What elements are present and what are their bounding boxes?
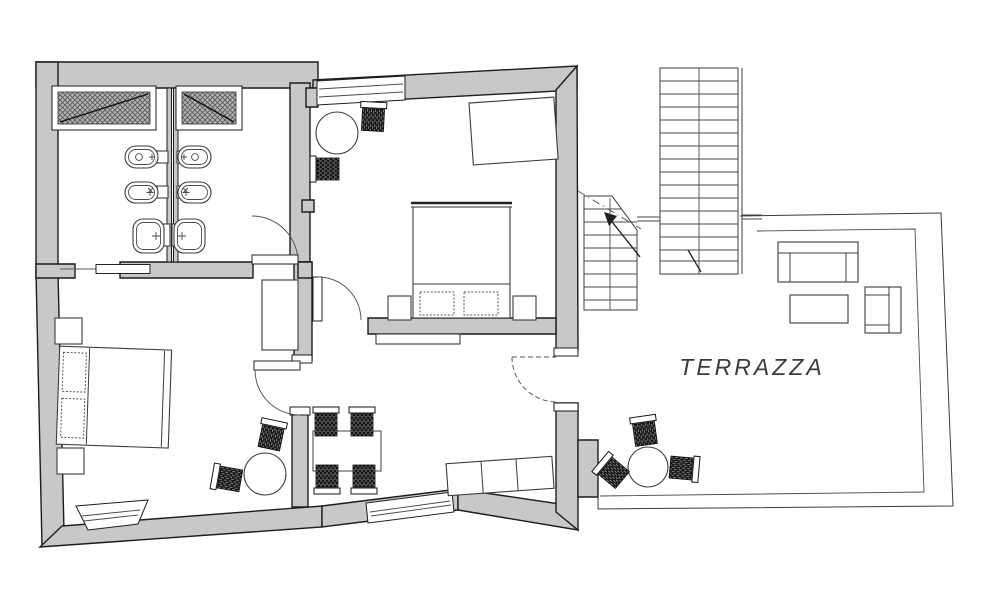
bedroom-left-furniture	[55, 318, 287, 495]
wicker-chair-icon	[349, 407, 375, 436]
stairs-up-arrow	[604, 212, 640, 257]
washbasin-icon	[172, 219, 205, 253]
door-terrace-dashed	[512, 357, 556, 402]
round-table-icon	[316, 112, 358, 154]
skylight-window-left	[52, 86, 156, 130]
large-staircase	[660, 68, 742, 274]
bidet-icon	[125, 182, 168, 203]
window-bedroom-right-top	[317, 76, 405, 105]
wicker-chair-icon	[210, 463, 243, 494]
wicker-chair-icon	[351, 465, 377, 494]
round-table-icon	[244, 453, 286, 495]
wicker-chair-icon	[310, 156, 339, 182]
skylight-window-right	[176, 86, 242, 130]
bidet-icon	[177, 182, 211, 203]
nightstand-icon	[57, 448, 84, 474]
nightstand-icon	[513, 296, 536, 320]
small-staircase	[578, 191, 641, 310]
toilet-icon	[177, 146, 211, 168]
wardrobe-icon	[262, 280, 298, 350]
radiator-icon	[376, 334, 460, 344]
wicker-chair-icon	[313, 407, 339, 436]
wicker-chair-icon	[314, 465, 340, 494]
nightstand-icon	[55, 318, 82, 344]
toilet-icon	[125, 146, 168, 168]
sofa-icon	[778, 242, 858, 282]
nightstand-icon	[388, 296, 411, 320]
wicker-chair-icon	[359, 101, 386, 131]
double-bed-icon	[411, 203, 512, 318]
bedroom-right-furniture	[310, 97, 558, 320]
door-bedroom-right	[313, 277, 361, 321]
floor-plan-canvas: TERRAZZA	[0, 0, 1000, 606]
round-table-icon	[628, 447, 668, 487]
terrace-label: TERRAZZA	[679, 354, 824, 380]
tilted-wardrobe-icon	[469, 97, 558, 165]
wicker-chair-icon	[669, 454, 700, 482]
double-bed-icon	[56, 346, 171, 448]
floor-plan: TERRAZZA	[0, 0, 1000, 606]
sideboard-bench-icon	[446, 456, 554, 495]
armchair-icon	[865, 287, 901, 333]
coffee-table-icon	[790, 295, 848, 323]
wicker-chair-icon	[256, 418, 287, 452]
wicker-chair-icon	[630, 414, 660, 446]
washbasin-icon	[133, 219, 170, 253]
